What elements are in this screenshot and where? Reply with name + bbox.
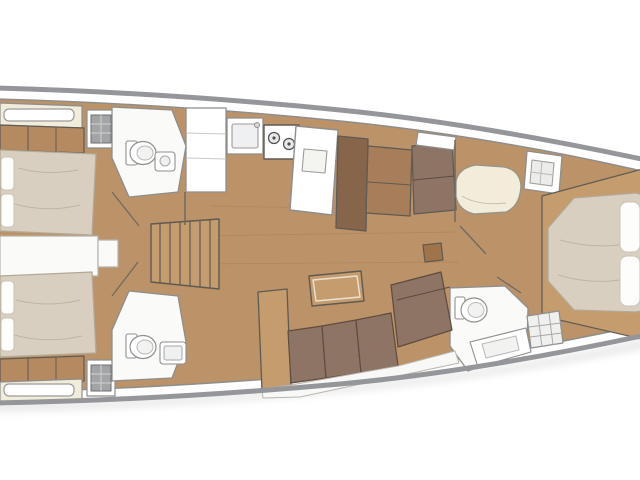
bed-stbd-pillow [1,281,14,314]
chaise-lounge [456,165,521,214]
centre-step [98,240,118,267]
sofa-cushion [356,313,398,373]
sink-port-basin [160,156,170,166]
floor-hatch [423,243,443,262]
head-stbd-floor [112,291,186,381]
companionway-stairs [151,219,219,289]
sink-stbd-basin [164,346,182,360]
bed-port-pillow [1,194,14,227]
sofa-arm [258,289,291,391]
berth-infill [0,236,98,276]
island-hatch [302,149,327,173]
toilet-stbd-bowl [137,340,153,354]
window-port [4,109,74,121]
galley-sink-basin [232,124,258,148]
sofa-cushion [288,326,326,383]
bed-port-pillow [1,157,14,190]
shower-grate [527,311,563,348]
toilet-fwd-bowl [468,303,484,318]
stove-burner-cap [287,142,290,145]
bed-stbd-pillow [1,318,14,351]
galley-tall-unit [186,108,226,192]
sideboard-unit [366,146,412,216]
bed-master-pillow [620,256,640,306]
floorplan-canvas [0,0,640,480]
sofa-cushion [322,320,361,378]
bed-master-pillow [620,202,640,252]
toilet-port-bowl [137,146,153,160]
galley-faucet [255,123,260,128]
window-stbd [4,384,74,396]
refrigerator-unit [336,136,368,231]
headboard-port [0,125,84,153]
yacht-floorplan [0,0,640,480]
stove-burner-cap [272,136,275,139]
